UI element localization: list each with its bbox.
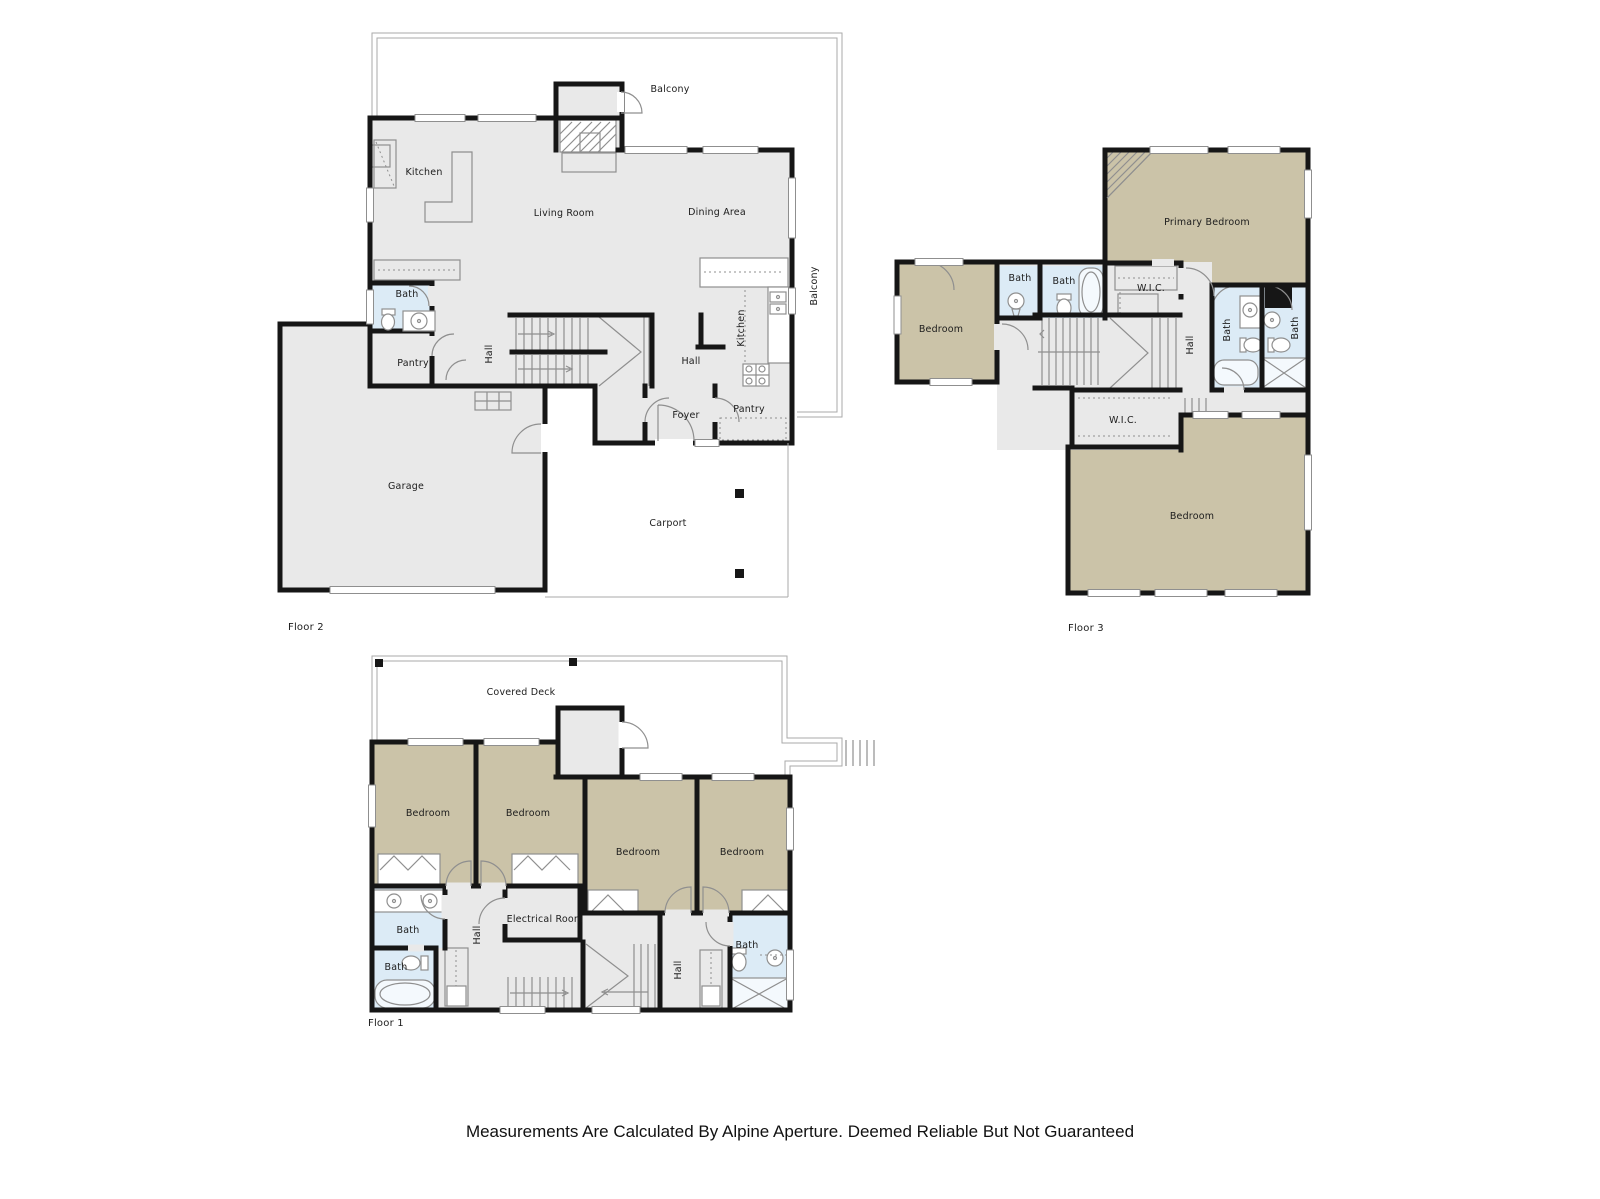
deck-stairs <box>846 740 874 766</box>
floor2-title: Floor 2 <box>288 622 324 633</box>
label-balcony-side: Balcony <box>809 266 820 305</box>
stove-icon <box>743 364 769 386</box>
label-bedroom-lower: Bedroom <box>1170 511 1214 522</box>
room-vestibule <box>558 708 622 777</box>
label-bedroom3: Bedroom <box>616 847 660 858</box>
label-kitchen: Kitchen <box>405 167 442 178</box>
carport-post <box>735 489 744 498</box>
label-wic-top: W.I.C. <box>1137 283 1165 294</box>
floor-2-plan: Balcony Kitchen Living Room Dining Area … <box>280 33 842 633</box>
label-living-room: Living Room <box>534 208 595 219</box>
label-hall-left: Hall <box>484 344 495 363</box>
disclaimer-text: Measurements Are Calculated By Alpine Ap… <box>0 1122 1600 1142</box>
label-pantry: Pantry <box>397 358 429 369</box>
label-electrical-room: Electrical Room <box>507 914 584 925</box>
label-hall3: Hall <box>1185 335 1196 354</box>
label-bath2: Bath <box>1053 276 1076 287</box>
label-bedroom4: Bedroom <box>720 847 764 858</box>
label-foyer: Foyer <box>672 410 699 421</box>
label-hall-right1: Hall <box>673 960 684 979</box>
label-dining-area: Dining Area <box>688 207 746 218</box>
floor1-title: Floor 1 <box>368 1018 404 1029</box>
label-covered-deck: Covered Deck <box>487 687 556 698</box>
deck-post <box>375 659 383 667</box>
label-bath1: Bath <box>1009 273 1032 284</box>
floor-3-plan: Primary Bedroom Bedroom Bath Bath W.I.C.… <box>894 147 1312 635</box>
deck-post <box>569 658 577 666</box>
label-pantry2: Pantry <box>733 404 765 415</box>
label-bath-upper: Bath <box>397 925 420 936</box>
label-bath3: Bath <box>1222 319 1233 342</box>
label-carport: Carport <box>649 518 686 529</box>
label-bath-lower: Bath <box>385 962 408 973</box>
label-bedroom-left: Bedroom <box>919 324 963 335</box>
room-bedroom-left <box>897 262 997 382</box>
floor3-title: Floor 3 <box>1068 623 1104 634</box>
floor-1-plan: Covered Deck Bedroom Bedroom Bedroom Bed… <box>368 656 874 1029</box>
label-balcony-top: Balcony <box>650 84 689 95</box>
label-bedroom2: Bedroom <box>506 808 550 819</box>
bath-fixtures <box>382 309 436 331</box>
label-bedroom1: Bedroom <box>406 808 450 819</box>
label-bath4: Bath <box>1290 317 1301 340</box>
carport-post <box>735 569 744 578</box>
label-garage: Garage <box>388 481 424 492</box>
floorplan-page: { "palette": { "wall": "#161616", "room_… <box>0 0 1600 1199</box>
floorplan-canvas: Balcony Kitchen Living Room Dining Area … <box>0 0 1600 1199</box>
label-hall-left1: Hall <box>472 925 483 944</box>
label-hall-center: Hall <box>681 356 700 367</box>
label-bath: Bath <box>396 289 419 300</box>
label-primary-bedroom: Primary Bedroom <box>1164 217 1250 228</box>
label-bath-right: Bath <box>736 940 759 951</box>
label-wic-lower: W.I.C. <box>1109 415 1137 426</box>
label-kitchen2: Kitchen <box>736 309 747 346</box>
